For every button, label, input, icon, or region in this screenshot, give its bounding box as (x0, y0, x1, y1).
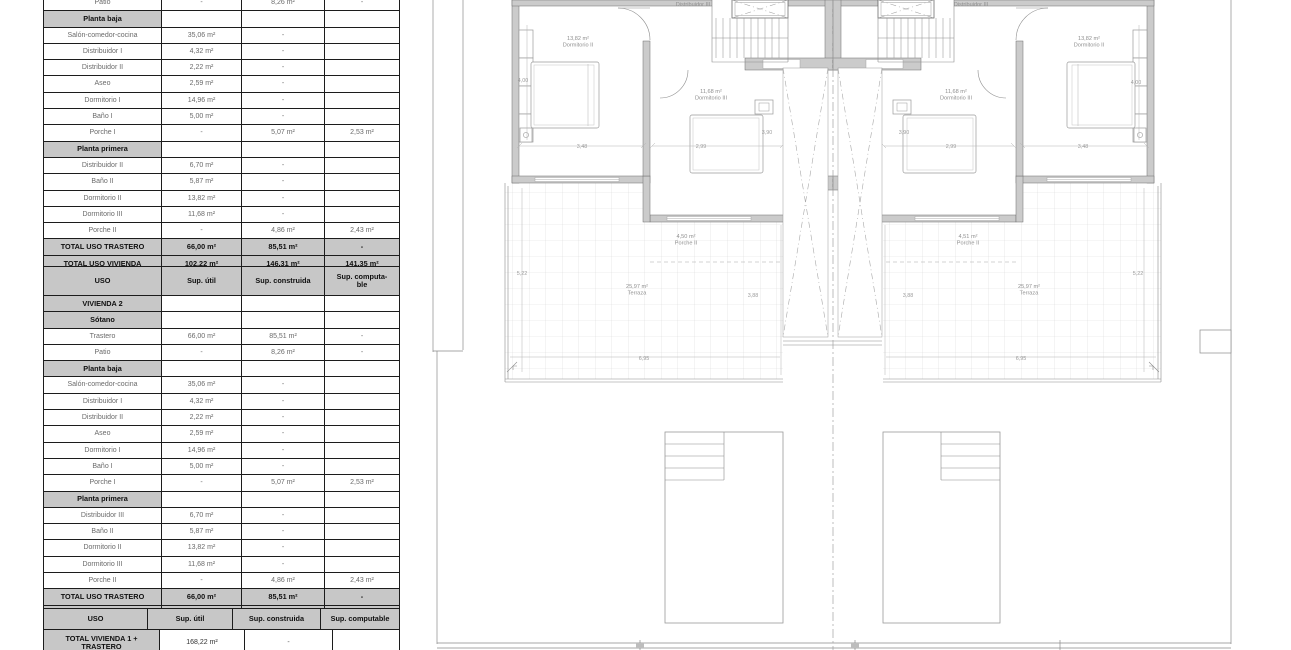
area-value: Sup. construida (232, 609, 320, 629)
plan-sheet: Patio-8,26 m²-Planta bajaSalón-comedor-c… (0, 0, 1291, 650)
row-label: Distribuidor II (44, 158, 161, 173)
area-value: 4,86 m² (241, 223, 324, 238)
area-value: 13,82 m² (161, 540, 241, 555)
area-value: 85,51 m² (241, 329, 324, 344)
row-label: Patio (44, 345, 161, 360)
area-value: - (241, 524, 324, 539)
table-row: VIVIENDA 2 (44, 295, 399, 311)
table-row: Porche I-5,07 m²2,53 m² (44, 474, 399, 490)
room-label: 13,82 m²Dormitorio II (563, 36, 594, 49)
row-label: Distribuidor I (44, 44, 161, 59)
row-label: Porche II (44, 223, 161, 238)
room-label: Distribuidor III (954, 2, 989, 8)
area-value (324, 76, 399, 91)
area-value (241, 492, 324, 507)
area-value: - (241, 443, 324, 458)
row-label: Salón-comedor-cocina (44, 377, 161, 392)
row-label: Salón-comedor-cocina (44, 28, 161, 43)
row-label: TOTAL VIVIENDA 1 + TRASTERO (44, 630, 159, 650)
row-label: Aseo (44, 426, 161, 441)
table-row: Distribuidor II2,22 m²- (44, 59, 399, 75)
area-value: 8,26 m² (241, 0, 324, 10)
area-value: Sup. computa-ble (324, 267, 399, 295)
area-value: 5,07 m² (241, 475, 324, 490)
area-value: - (161, 0, 241, 10)
dimension-label: 4,00 (1131, 80, 1142, 86)
area-value: - (241, 410, 324, 425)
row-label: Dormitorio III (44, 557, 161, 572)
boundary-marker (851, 643, 859, 648)
area-value: - (241, 459, 324, 474)
area-value (241, 312, 324, 327)
dimension-label: 3,48 (577, 144, 588, 150)
dimension-label: 3,88 (903, 293, 914, 299)
row-label: Baño I (44, 459, 161, 474)
boundary-notch (1200, 330, 1231, 353)
table-vivienda1: Patio-8,26 m²-Planta bajaSalón-comedor-c… (43, 0, 400, 272)
dimension-label: 6,95 (1016, 356, 1027, 362)
area-value: - (241, 557, 324, 572)
table-row: Sótano (44, 311, 399, 327)
area-value: Sup. construida (241, 267, 324, 295)
area-value: - (161, 573, 241, 588)
area-value: - (241, 426, 324, 441)
table-vivienda2: USOSup. útilSup. construidaSup. computa-… (43, 266, 400, 622)
area-value: 168,22 m² (159, 630, 244, 650)
area-value: - (241, 508, 324, 523)
row-label: Planta baja (44, 361, 161, 376)
table-row: Patio-8,26 m²- (44, 344, 399, 360)
row-label: Dormitorio III (44, 207, 161, 222)
area-value (324, 158, 399, 173)
area-value: - (241, 540, 324, 555)
area-value: 14,96 m² (161, 443, 241, 458)
table-row: Trastero66,00 m²85,51 m²- (44, 328, 399, 344)
area-value: 35,06 m² (161, 28, 241, 43)
area-value (324, 11, 399, 26)
table-row: Porche II-4,86 m²2,43 m² (44, 222, 399, 238)
area-value: - (161, 223, 241, 238)
area-value: 2,59 m² (161, 76, 241, 91)
area-value (161, 142, 241, 157)
table-row: Dormitorio III11,68 m²- (44, 206, 399, 222)
area-value: - (324, 345, 399, 360)
area-value: 85,51 m² (241, 589, 324, 604)
area-value: 66,00 m² (161, 589, 241, 604)
area-value (324, 44, 399, 59)
row-label: Planta primera (44, 492, 161, 507)
area-value (324, 174, 399, 189)
table-row: Patio-8,26 m²- (44, 0, 399, 10)
dimension-label: 6,95 (639, 356, 650, 362)
area-value: 5,00 m² (161, 459, 241, 474)
area-value: 11,68 m² (161, 207, 241, 222)
table-row: Porche I-5,07 m²2,53 m² (44, 124, 399, 140)
table-row: Dormitorio II13,82 m²- (44, 190, 399, 206)
area-value: - (161, 475, 241, 490)
area-value: 4,32 m² (161, 394, 241, 409)
table-row: Baño I5,00 m²- (44, 108, 399, 124)
area-value: 2,53 m² (324, 475, 399, 490)
area-value (332, 630, 399, 650)
dimension-label: 5,22 (517, 271, 528, 277)
dimension-label: 3,48 (1078, 144, 1089, 150)
table-row: Dormitorio I14,96 m²- (44, 92, 399, 108)
area-value: 2,22 m² (161, 60, 241, 75)
row-label: Trastero (44, 329, 161, 344)
table-row: Distribuidor I4,32 m²- (44, 393, 399, 409)
area-value (324, 508, 399, 523)
area-value: 4,32 m² (161, 44, 241, 59)
area-value: Sup. computable (320, 609, 399, 629)
table-row: Baño II5,87 m²- (44, 173, 399, 189)
area-value: - (241, 377, 324, 392)
room-label: Distribuidor III (676, 2, 711, 8)
table-row: TOTAL VIVIENDA 1 + TRASTERO168,22 m²- (44, 629, 399, 650)
table-row: Planta baja (44, 360, 399, 376)
area-value: 4,86 m² (241, 573, 324, 588)
area-value (324, 312, 399, 327)
row-label: TOTAL USO TRASTERO (44, 239, 161, 254)
area-value (324, 109, 399, 124)
area-value: - (241, 207, 324, 222)
dimension-label: 3,90 (762, 130, 773, 136)
row-label: Distribuidor II (44, 60, 161, 75)
area-value (324, 191, 399, 206)
room-label: 11,68 m²Dormitorio III (940, 89, 972, 102)
area-value (324, 361, 399, 376)
area-value: - (241, 109, 324, 124)
row-label: Distribuidor II (44, 410, 161, 425)
area-value: - (241, 394, 324, 409)
area-value: 2,59 m² (161, 426, 241, 441)
table-row: Dormitorio II13,82 m²- (44, 539, 399, 555)
row-label: Planta primera (44, 142, 161, 157)
area-value: - (241, 60, 324, 75)
area-value: 5,87 m² (161, 174, 241, 189)
area-value (324, 142, 399, 157)
area-value: 14,96 m² (161, 93, 241, 108)
area-value: - (244, 630, 332, 650)
table-row: USOSup. útilSup. construidaSup. computab… (44, 609, 399, 629)
room-label: 11,68 m²Dormitorio III (695, 89, 727, 102)
area-value: 66,00 m² (161, 239, 241, 254)
dimension-label: 4,00 (518, 78, 529, 84)
row-label: Baño II (44, 174, 161, 189)
room-label: 13,82 m²Dormitorio II (1074, 36, 1105, 49)
floor-plan: 13,82 m²Dormitorio II11,68 m²Dormitorio … (430, 0, 1291, 650)
dimension-label: 2,99 (696, 144, 707, 150)
dimension-label: 3,90 (899, 130, 910, 136)
area-value (324, 60, 399, 75)
table-row: Baño I5,00 m²- (44, 458, 399, 474)
area-value: 6,70 m² (161, 158, 241, 173)
room-label: 25,97 m²Terraza (626, 284, 648, 297)
area-value (324, 443, 399, 458)
table-row: Planta primera (44, 491, 399, 507)
row-label: Baño II (44, 524, 161, 539)
area-value (324, 377, 399, 392)
dimension-label: 2,99 (946, 144, 957, 150)
area-value (324, 207, 399, 222)
area-value: 2,22 m² (161, 410, 241, 425)
area-value: 2,43 m² (324, 223, 399, 238)
row-label: Patio (44, 0, 161, 10)
area-value (324, 426, 399, 441)
area-value: - (241, 28, 324, 43)
area-value: 2,53 m² (324, 125, 399, 140)
row-label: Porche I (44, 125, 161, 140)
area-value: - (161, 125, 241, 140)
area-value (324, 394, 399, 409)
area-value (241, 361, 324, 376)
area-value (161, 312, 241, 327)
pool-right (883, 432, 1000, 623)
area-value: - (241, 174, 324, 189)
area-value (324, 459, 399, 474)
table-row: Dormitorio I14,96 m²- (44, 442, 399, 458)
area-value (241, 142, 324, 157)
table-row: Planta primera (44, 141, 399, 157)
table-row: Dormitorio III11,68 m²- (44, 556, 399, 572)
row-label: Planta baja (44, 11, 161, 26)
area-value: 13,82 m² (161, 191, 241, 206)
boundary-marker (636, 643, 644, 648)
area-value: - (324, 329, 399, 344)
area-value (241, 11, 324, 26)
area-value: 5,87 m² (161, 524, 241, 539)
table-row: TOTAL USO TRASTERO66,00 m²85,51 m²- (44, 588, 399, 604)
area-value: 2,43 m² (324, 573, 399, 588)
table-row: Salón-comedor-cocina35,06 m²- (44, 376, 399, 392)
area-value (324, 410, 399, 425)
area-value: Sup. útil (161, 267, 241, 295)
room-label: 25,97 m²Terraza (1018, 284, 1040, 297)
table-totals: USOSup. útilSup. construidaSup. computab… (43, 608, 400, 650)
area-value: - (241, 191, 324, 206)
row-label: Sótano (44, 312, 161, 327)
area-value: 5,07 m² (241, 125, 324, 140)
area-value: - (241, 158, 324, 173)
row-label: Dormitorio I (44, 93, 161, 108)
area-value (324, 492, 399, 507)
row-label: TOTAL USO TRASTERO (44, 589, 161, 604)
central-void (783, 68, 882, 345)
area-value (161, 296, 241, 311)
table-row: Planta baja (44, 10, 399, 26)
area-value (324, 524, 399, 539)
area-value: Sup. útil (147, 609, 232, 629)
area-value: 35,06 m² (161, 377, 241, 392)
area-value: 8,26 m² (241, 345, 324, 360)
row-label: Dormitorio I (44, 443, 161, 458)
area-value (324, 540, 399, 555)
area-value (161, 361, 241, 376)
table-row: Salón-comedor-cocina35,06 m²- (44, 27, 399, 43)
table-row: TOTAL USO TRASTERO66,00 m²85,51 m²- (44, 238, 399, 254)
area-value: - (161, 345, 241, 360)
room-label: 4,50 m²Porche II (675, 234, 698, 247)
dimension-label: 3,88 (748, 293, 759, 299)
area-value (161, 492, 241, 507)
area-value: 5,00 m² (161, 109, 241, 124)
row-label: Baño I (44, 109, 161, 124)
area-value: - (324, 239, 399, 254)
area-value: - (241, 93, 324, 108)
row-label: Dormitorio II (44, 191, 161, 206)
table-row: Distribuidor II6,70 m²- (44, 157, 399, 173)
row-label: USO (44, 609, 147, 629)
row-label: Distribuidor I (44, 394, 161, 409)
area-value: - (241, 44, 324, 59)
row-label: Aseo (44, 76, 161, 91)
row-label: Distribuidor III (44, 508, 161, 523)
table-row: Aseo2,59 m²- (44, 75, 399, 91)
room-label: 4,51 m²Porche II (957, 234, 980, 247)
row-label: USO (44, 267, 161, 295)
row-label: Porche I (44, 475, 161, 490)
area-value: - (324, 0, 399, 10)
row-label: Dormitorio II (44, 540, 161, 555)
area-value: - (241, 76, 324, 91)
area-value: 85,51 m² (241, 239, 324, 254)
area-value (324, 296, 399, 311)
table-row: USOSup. útilSup. construidaSup. computa-… (44, 267, 399, 295)
table-row: Distribuidor II2,22 m²- (44, 409, 399, 425)
table-row: Distribuidor III6,70 m²- (44, 507, 399, 523)
dimension-label: 5,22 (1133, 271, 1144, 277)
row-label: Porche II (44, 573, 161, 588)
table-row: Aseo2,59 m²- (44, 425, 399, 441)
row-label: VIVIENDA 2 (44, 296, 161, 311)
area-value: 6,70 m² (161, 508, 241, 523)
table-row: Distribuidor I4,32 m²- (44, 43, 399, 59)
area-value (324, 28, 399, 43)
table-row: Porche II-4,86 m²2,43 m² (44, 572, 399, 588)
area-value (324, 93, 399, 108)
area-value: 11,68 m² (161, 557, 241, 572)
area-value: - (324, 589, 399, 604)
area-value (161, 11, 241, 26)
area-value: 66,00 m² (161, 329, 241, 344)
area-value (324, 557, 399, 572)
table-row: Baño II5,87 m²- (44, 523, 399, 539)
pool-left (665, 432, 783, 623)
area-value (241, 296, 324, 311)
